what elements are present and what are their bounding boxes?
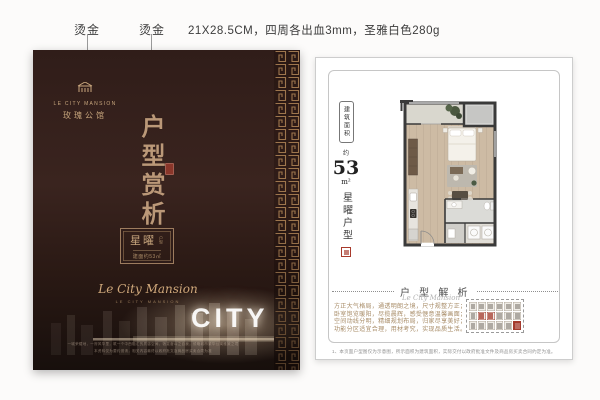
script-signature: Le City Mansion [88,282,208,296]
area-unit: m² [341,178,350,186]
floorplan-wardrobe [409,139,418,175]
floorplan-kitchen [409,189,419,241]
fret-pattern [274,50,300,370]
mansion-crest-icon [77,82,93,93]
unit-name: 星曜 [130,232,156,248]
floorplan-desk-area [447,165,477,187]
floorplan-page: 建筑面积 约 53 m² 星曜户型 [315,57,573,360]
plan-unit-name: 星曜户型 [339,192,354,242]
divider-dots-right [477,291,558,292]
cover-title-vertical: 户型赏析 [134,114,169,230]
unit-area-line: 建面约53㎡ [133,250,162,260]
area-info-column: 建筑面积 约 53 m² 星曜户型 [332,101,360,257]
floorplan-copy-block: 方正大气格局，通透明朗之境，尺寸规整方正； 卧室饱览暖阳，尽揽晨辉，感受惬意温馨… [334,304,466,334]
unit-name-suffix: 户型 [158,236,164,244]
cover-disclaimer-2: 本资料仅为要约邀请，相关内容最终以政府批文及商品房买卖合同为准 [58,349,248,354]
city-watermark-text: CITY [191,303,269,334]
copy-line: 空间动线分明，精细规划布局，归家尽享美好； [334,319,466,327]
signature-caps: LE CITY MANSION [88,299,208,304]
cover-disclaimer-1: 一城荣耀地，一府风华里，筑一个中西融汇的质感空间，犒赏奋斗之自我，领略城市繁华公… [58,342,248,347]
unit-info-card: 星曜 户型 建面约53㎡ [120,228,174,264]
seal-stamp-grid [466,299,524,333]
area-label-box: 建筑面积 [339,101,354,143]
design-proof-canvas: 烫金 烫金 21X28.5CM，四周各出血3mm，圣雅白色280g [0,0,600,400]
area-value: 53 [333,158,359,178]
floorplan-drawing [400,99,500,251]
print-spec-text: 21X28.5CM，四周各出血3mm，圣雅白色280g [188,22,440,38]
area-approx: 约 [343,148,349,157]
foil-annotation-2: 烫金 [139,21,165,38]
copy-line: 功能分区适宜合理，用材考究，实现品质生活。 [334,327,466,335]
brochure-cover-page: LE CITY MANSION 玫瑰公馆 户型赏析 星曜 户型 建面约53㎡ L… [33,50,300,370]
gold-lattice-border [274,50,300,370]
brand-name-en: LE CITY MANSION [45,101,125,107]
plan-footnote: 1、本页面户型图仅为示意图，所示面积为建筑面积，实际交付以政府批准文件及商品房买… [332,349,558,355]
red-seal-icon [165,163,174,175]
brand-logo-block: LE CITY MANSION 玫瑰公馆 [45,80,125,121]
brand-name-cn: 玫瑰公馆 [45,110,125,121]
divider-dots-left [332,291,394,292]
copy-line: 方正大气格局，通透明朗之境，尺寸规整方正； [334,304,466,312]
red-seal-icon [341,247,351,257]
